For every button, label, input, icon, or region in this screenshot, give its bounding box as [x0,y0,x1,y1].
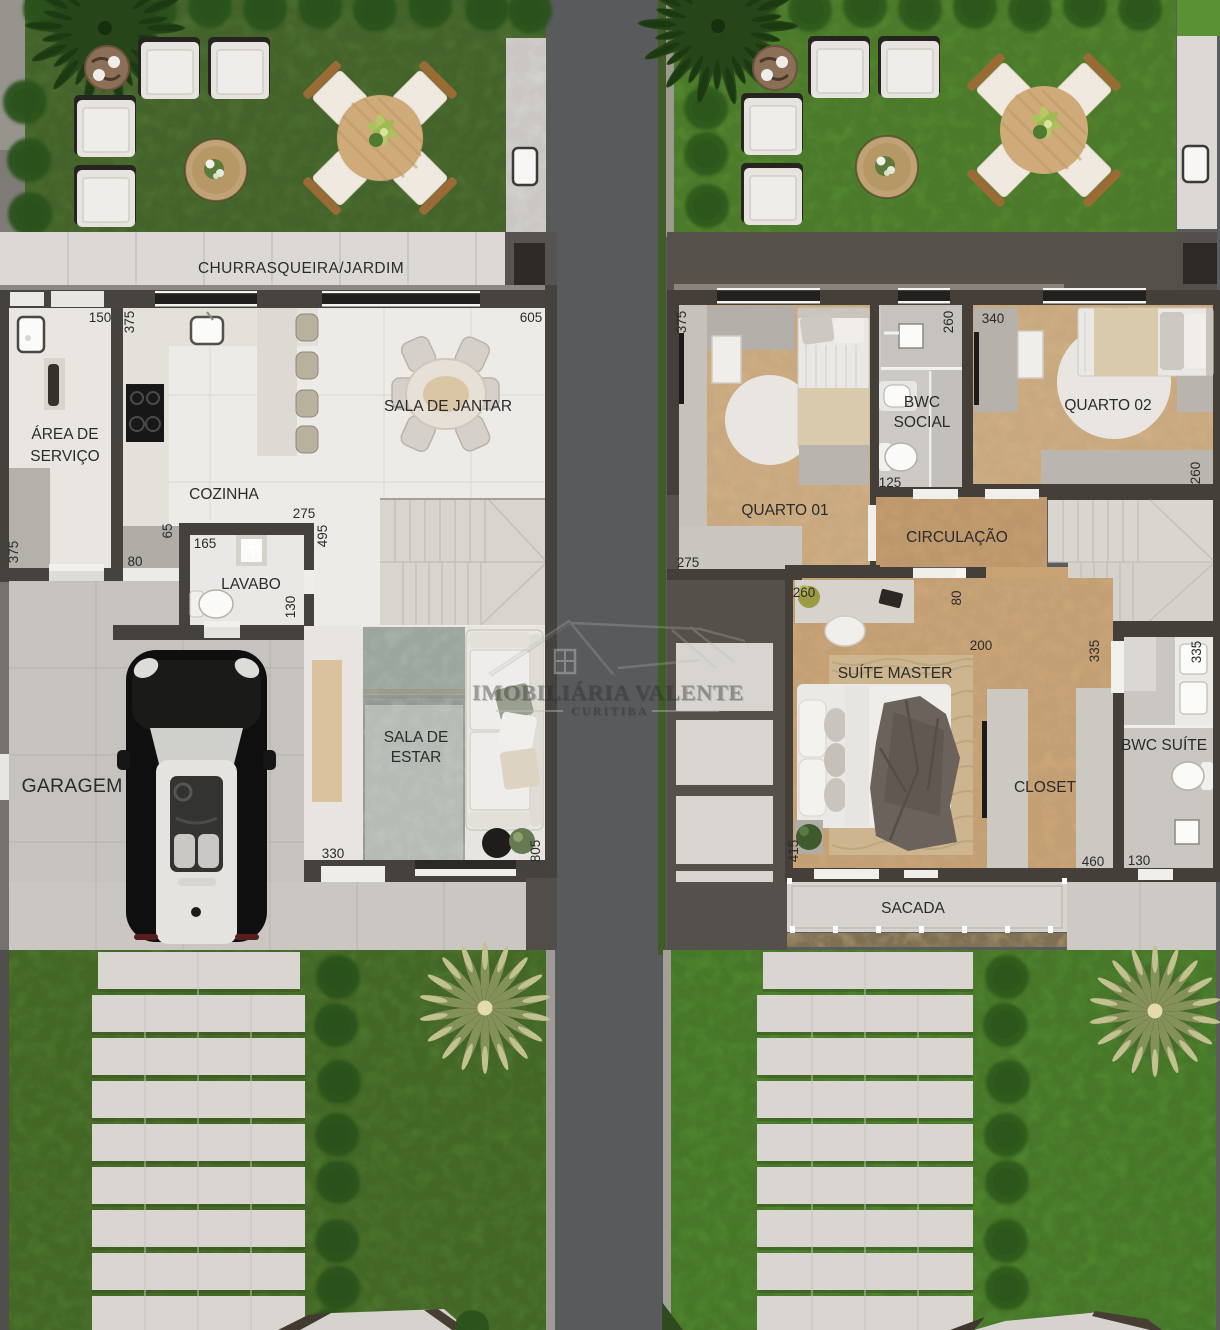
svg-text:150: 150 [89,310,112,325]
svg-text:65: 65 [160,523,175,538]
svg-text:ÁREA DE: ÁREA DE [31,426,98,443]
svg-text:SERVIÇO: SERVIÇO [30,448,100,465]
svg-text:CHURRASQUEIRA/JARDIM: CHURRASQUEIRA/JARDIM [198,260,404,277]
svg-text:275: 275 [677,555,700,570]
svg-text:460: 460 [1082,854,1105,869]
svg-text:375: 375 [122,311,137,334]
svg-text:CURITIBA: CURITIBA [571,706,649,718]
svg-text:SACADA: SACADA [881,900,945,917]
svg-text:165: 165 [194,536,217,551]
svg-text:COZINHA: COZINHA [189,486,259,503]
svg-text:335: 335 [1087,640,1102,663]
svg-text:BWC SUÍTE: BWC SUÍTE [1121,737,1207,754]
svg-text:605: 605 [520,310,543,325]
svg-text:80: 80 [949,590,964,605]
svg-text:375: 375 [6,541,21,564]
svg-text:130: 130 [1128,853,1151,868]
svg-text:260: 260 [941,311,956,334]
svg-text:80: 80 [127,554,142,569]
svg-text:495: 495 [315,525,330,548]
svg-text:415: 415 [786,840,801,863]
svg-text:260: 260 [793,585,816,600]
svg-text:340: 340 [982,311,1005,326]
svg-text:IMOBILIÁRIA VALENTE: IMOBILIÁRIA VALENTE [472,680,744,705]
svg-text:260: 260 [1188,462,1203,485]
svg-text:LAVABO: LAVABO [221,576,281,593]
svg-text:QUARTO 01: QUARTO 01 [741,502,828,519]
svg-text:CLOSET: CLOSET [1014,779,1077,796]
svg-text:200: 200 [970,638,993,653]
svg-text:CIRCULAÇÃO: CIRCULAÇÃO [906,529,1008,546]
svg-text:335: 335 [1189,641,1204,664]
svg-text:805: 805 [528,840,543,863]
svg-text:375: 375 [674,311,689,334]
svg-text:SUÍTE MASTER: SUÍTE MASTER [838,665,953,682]
svg-text:275: 275 [293,506,316,521]
svg-text:ESTAR: ESTAR [391,749,442,766]
svg-text:BWC: BWC [904,394,940,411]
svg-text:330: 330 [322,846,345,861]
svg-text:125: 125 [879,475,902,490]
svg-text:QUARTO 02: QUARTO 02 [1064,397,1151,414]
svg-text:130: 130 [283,596,298,619]
svg-text:SALA DE: SALA DE [384,729,449,746]
svg-text:SOCIAL: SOCIAL [894,414,951,431]
svg-text:GARAGEM: GARAGEM [21,775,122,797]
svg-text:SALA DE JANTAR: SALA DE JANTAR [384,398,512,415]
